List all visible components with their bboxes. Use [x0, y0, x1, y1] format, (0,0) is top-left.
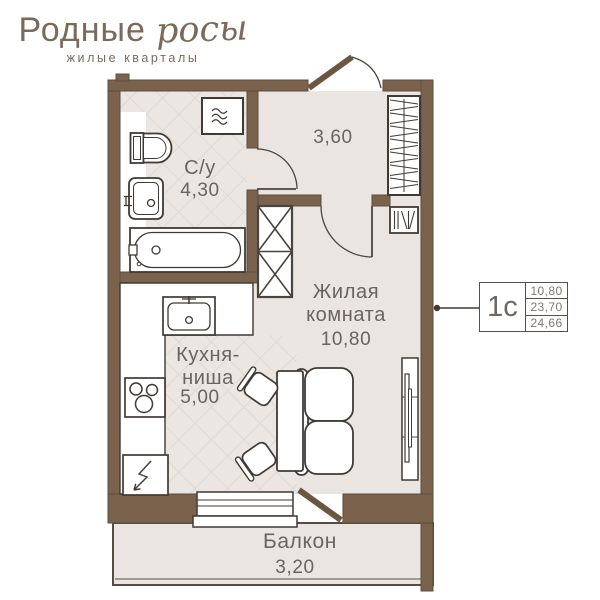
wardrobe-hangers-icon	[388, 96, 420, 195]
room-area-hall: 3,60	[303, 127, 363, 149]
unit-callout: 1с 10,80 23,70 24,66	[479, 282, 568, 332]
balcony-window	[193, 492, 297, 527]
callout-leader	[434, 305, 479, 311]
room-area-balcony: 3,20	[240, 557, 350, 579]
floorplan-page: Родные росы жилые кварталы	[0, 0, 600, 600]
fridge-icon	[123, 455, 168, 495]
shoe-cabinet-icon	[390, 207, 418, 233]
room-label-living: Жилая комната	[296, 281, 396, 327]
kitchen-sink-icon	[163, 296, 215, 335]
unit-areas: 10,80 23,70 24,66	[526, 283, 567, 331]
balcony-door-leaf	[299, 490, 341, 520]
entrance-door-swing	[352, 57, 381, 88]
room-label-bathroom: С/у	[170, 157, 230, 180]
unit-area-value: 10,80	[526, 283, 567, 298]
toilet-icon	[131, 133, 172, 163]
table	[277, 371, 303, 471]
wardrobe-cabinet	[258, 206, 292, 297]
room-area-bathroom: 4,30	[170, 180, 230, 202]
sink-icon	[124, 178, 163, 219]
room-label-balcony: Балкон	[240, 530, 360, 554]
room-area-kitchen: 5,00	[160, 387, 240, 409]
entrance-door-leaf	[309, 57, 352, 88]
room-area-living: 10,80	[306, 329, 386, 351]
washing-machine-icon	[202, 98, 243, 134]
room-label-kitchen: Кухня- ниша	[168, 344, 248, 390]
unit-type: 1с	[480, 283, 526, 331]
unit-area-value: 24,66	[526, 315, 567, 331]
bathtub-icon	[129, 228, 245, 272]
window-sill	[193, 516, 297, 527]
unit-area-value: 23,70	[526, 298, 567, 314]
tv-stand	[402, 358, 418, 480]
cooktop-icon	[125, 378, 165, 417]
